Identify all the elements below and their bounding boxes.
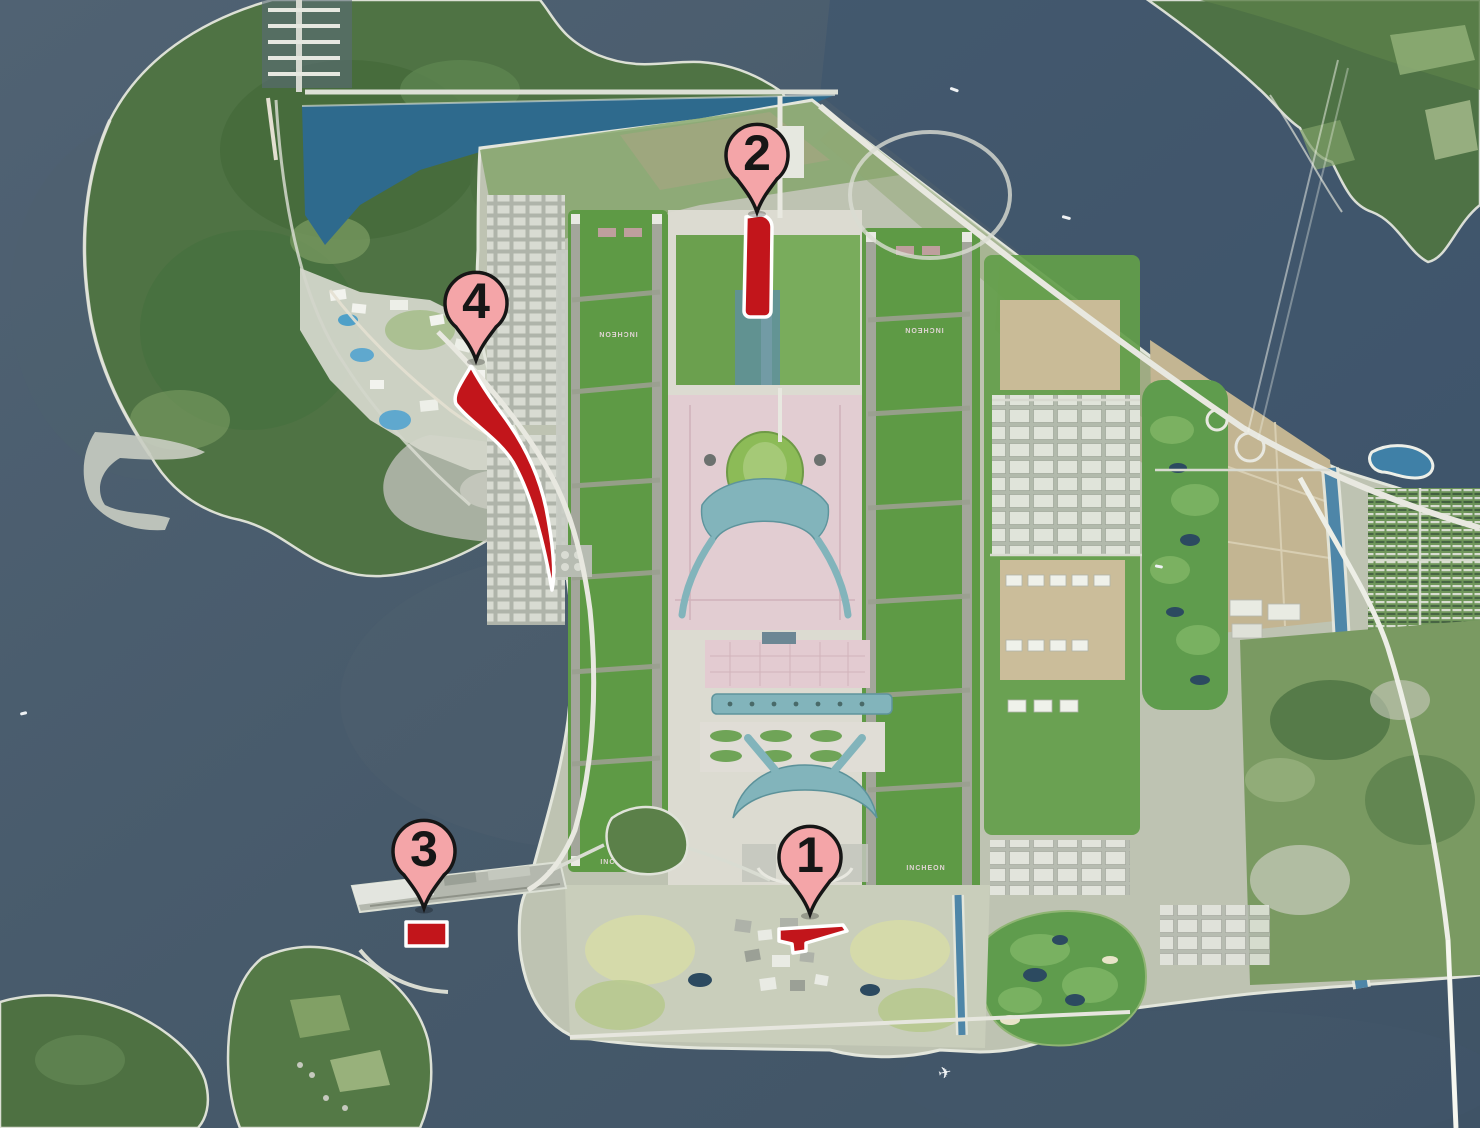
ibc-canal [958, 895, 962, 1035]
logistics-blocks [1160, 905, 1270, 965]
industrial-blocks [992, 395, 1140, 555]
service-area [556, 545, 592, 577]
cargo-shed [762, 632, 796, 644]
pin-number: 4 [462, 273, 490, 329]
southeast-rural [1240, 620, 1480, 985]
east-airfield [984, 255, 1140, 895]
runway-label: INCHEON [904, 326, 943, 333]
east-apron-north [1000, 300, 1120, 390]
highlight-zone-2[interactable] [744, 215, 772, 317]
pin-number: 1 [796, 827, 824, 883]
ibc-zone [565, 885, 990, 1048]
runway-east-2 [962, 232, 972, 896]
pin-number: 2 [743, 125, 771, 181]
runway-label: INCHEON [598, 330, 637, 337]
logistics-south [990, 840, 1130, 895]
small-island [607, 807, 688, 874]
map-viewport: INCHEON INCHEON INCHEON INCHEON [0, 0, 1480, 1128]
satellite-map: INCHEON INCHEON INCHEON INCHEON [0, 0, 1480, 1128]
runway-label: INCHEON [906, 865, 945, 872]
runway-group-west: INCHEON INCHEON [568, 210, 668, 872]
runway-west-2 [652, 214, 662, 866]
highlight-zone-3[interactable] [406, 922, 447, 946]
runway-group-east: INCHEON INCHEON [862, 228, 980, 902]
concourse [712, 694, 892, 714]
terminal-corridor [668, 126, 892, 910]
south-golf-course [979, 911, 1146, 1045]
pin-number: 3 [410, 821, 438, 877]
